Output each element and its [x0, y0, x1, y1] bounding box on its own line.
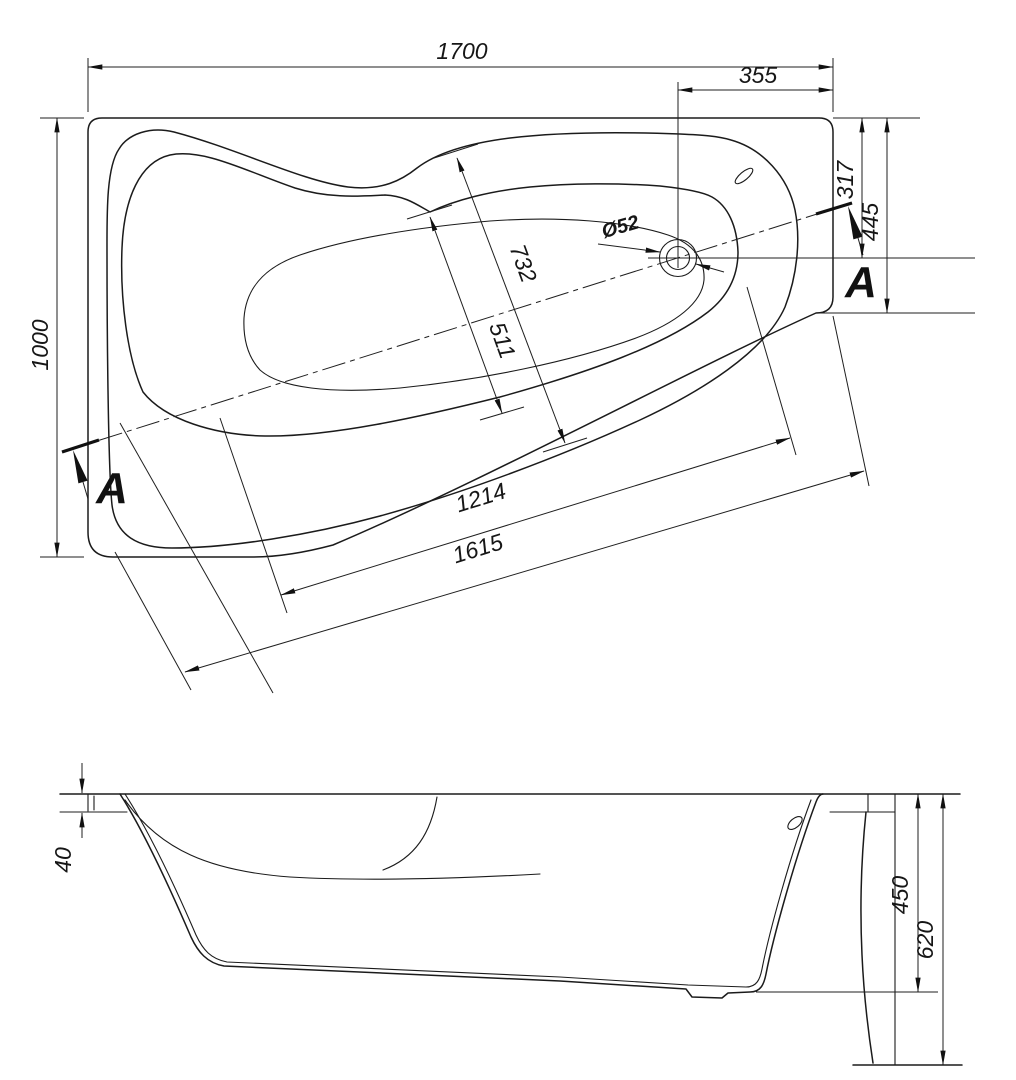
left-rim-edge — [60, 794, 127, 812]
leader-line — [696, 264, 724, 272]
dim-text-732: 732 — [505, 241, 543, 286]
tub-shell-outer — [120, 794, 823, 998]
dim-cross-outer: 732 — [434, 144, 587, 452]
dim-overall-length: 1700 — [88, 38, 833, 112]
dim-text-355: 355 — [739, 62, 778, 88]
dim-cross-inner: 511 — [407, 205, 524, 420]
section-label-left: A — [95, 464, 128, 513]
dim-drain-to-edge: 355 — [678, 62, 833, 90]
basin-profile-curve — [125, 800, 540, 879]
ext-line — [480, 407, 524, 420]
dim-rim-height: 40 — [50, 763, 98, 873]
dim-text-drain: Ø52 — [599, 211, 641, 243]
section-arrow-left-icon — [73, 450, 88, 483]
dim-text-511: 511 — [484, 319, 521, 362]
section-end-right — [816, 203, 852, 214]
dim-text-1214: 1214 — [452, 477, 509, 517]
top-view: A A 1700 355 1000 317 4 — [27, 38, 975, 693]
technical-drawing: A A 1700 355 1000 317 4 — [0, 0, 1016, 1080]
dim-text-1000: 1000 — [27, 319, 53, 370]
dim-line — [281, 438, 790, 595]
basin-floor-contour — [244, 219, 704, 390]
section-end-left — [62, 440, 99, 452]
ext-line — [407, 205, 452, 219]
rim-inner-contour — [107, 130, 798, 548]
side-view: 40 450 620 — [50, 763, 962, 1065]
basin-end-curve — [383, 797, 437, 870]
overflow-hole-top — [733, 166, 755, 186]
dim-right-side: 317 445 — [820, 118, 975, 313]
ext-line — [434, 144, 478, 158]
right-end-apron — [830, 794, 962, 1065]
drawing-sheet: A A 1700 355 1000 317 4 — [0, 0, 1016, 1080]
dim-inner-depth: 450 — [756, 794, 938, 992]
overflow-hole-side — [786, 814, 805, 832]
dim-text-40: 40 — [50, 847, 76, 873]
leader-line — [598, 244, 660, 252]
dim-overall-width: 1000 — [27, 118, 84, 557]
section-line: A A — [62, 203, 877, 513]
dim-line — [457, 158, 565, 443]
dim-text-1700: 1700 — [436, 38, 487, 64]
section-label-right: A — [844, 258, 877, 307]
apron-curve — [861, 812, 873, 1063]
basin-contour — [122, 154, 738, 436]
dim-overall-height: 620 — [912, 794, 943, 1065]
ext-line — [747, 287, 796, 455]
dim-text-1615: 1615 — [449, 528, 506, 568]
section-dash-dot-line — [62, 203, 852, 452]
ext-line — [833, 316, 869, 486]
ext-line — [115, 552, 191, 690]
dim-line — [185, 471, 864, 672]
dim-text-450: 450 — [887, 876, 913, 915]
dim-text-445: 445 — [857, 203, 883, 242]
drain — [648, 82, 975, 277]
tub-shell-inner — [125, 794, 811, 987]
ext-line — [543, 438, 587, 452]
ext-line — [220, 418, 287, 613]
dim-text-620: 620 — [912, 921, 938, 960]
dim-text-317: 317 — [832, 160, 858, 200]
